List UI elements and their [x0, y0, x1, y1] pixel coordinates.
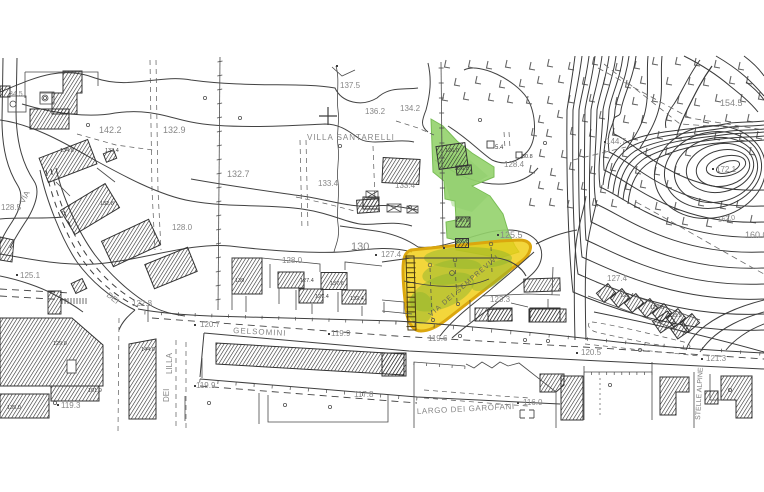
svg-text:172.1: 172.1 — [716, 165, 737, 174]
svg-text:101.9: 101.9 — [88, 388, 102, 394]
svg-text:144.7: 144.7 — [606, 137, 627, 146]
svg-text:134.2: 134.2 — [400, 104, 421, 113]
svg-text:123.6: 123.6 — [650, 305, 664, 311]
svg-text:142.2: 142.2 — [99, 125, 122, 135]
svg-text:119.6: 119.6 — [428, 334, 448, 343]
svg-text:133.4: 133.4 — [318, 179, 339, 188]
svg-text:123.5: 123.5 — [668, 313, 682, 319]
svg-text:121.3: 121.3 — [706, 354, 727, 363]
svg-text:128.4: 128.4 — [504, 160, 525, 169]
svg-text:120.5: 120.5 — [581, 348, 602, 357]
svg-text:123.3: 123.3 — [490, 295, 511, 304]
svg-text:127.4: 127.4 — [315, 294, 329, 300]
svg-text:154.5: 154.5 — [720, 98, 743, 108]
svg-text:DEI: DEI — [162, 389, 171, 402]
svg-text:127.4: 127.4 — [607, 274, 628, 283]
svg-text:137.6: 137.6 — [330, 281, 344, 287]
svg-text:136.2: 136.2 — [365, 107, 386, 116]
svg-text:116.0: 116.0 — [523, 398, 543, 407]
svg-text:119.9: 119.9 — [331, 329, 351, 338]
svg-text:160.0: 160.0 — [745, 230, 764, 240]
svg-text:30.8: 30.8 — [522, 154, 533, 160]
svg-text:119.9: 119.9 — [196, 381, 216, 390]
svg-text:226.8: 226.8 — [455, 239, 469, 245]
svg-text:132.4: 132.4 — [350, 296, 364, 302]
svg-text:125.1: 125.1 — [20, 271, 41, 280]
svg-text:133.4: 133.4 — [105, 148, 119, 154]
svg-text:VILLA SANTARELLI: VILLA SANTARELLI — [307, 133, 395, 142]
svg-text:226.8: 226.8 — [455, 218, 469, 224]
svg-text:128.5: 128.5 — [1, 203, 22, 212]
svg-text:119.3: 119.3 — [61, 401, 81, 410]
svg-text:127.4: 127.4 — [300, 278, 314, 284]
svg-text:226.8: 226.8 — [455, 166, 469, 172]
svg-text:132.9: 132.9 — [163, 125, 186, 135]
svg-text:127.4: 127.4 — [381, 250, 402, 259]
svg-text:128.0: 128.0 — [172, 223, 193, 232]
svg-text:117.8: 117.8 — [354, 390, 374, 399]
svg-text:34.5: 34.5 — [9, 91, 23, 98]
svg-text:125.5: 125.5 — [500, 230, 523, 240]
svg-text:132.7: 132.7 — [227, 169, 250, 179]
svg-text:129.0: 129.0 — [53, 341, 67, 347]
svg-text:133.4: 133.4 — [395, 181, 416, 190]
svg-text:120.7: 120.7 — [200, 320, 221, 329]
svg-text:137.5: 137.5 — [340, 81, 361, 90]
svg-text:123.4: 123.4 — [620, 293, 634, 299]
svg-text:130: 130 — [351, 241, 369, 253]
svg-text:5.4: 5.4 — [495, 145, 504, 151]
svg-text:126.0: 126.0 — [445, 148, 459, 154]
svg-text:128.0: 128.0 — [282, 256, 303, 265]
svg-text:122.8: 122.8 — [132, 299, 153, 308]
svg-text:135.0: 135.0 — [7, 405, 21, 411]
svg-text:139: 139 — [235, 278, 244, 284]
svg-text:132.8: 132.8 — [100, 201, 114, 207]
svg-text:144.0: 144.0 — [141, 347, 155, 353]
svg-text:LILLA: LILLA — [165, 352, 174, 374]
svg-text:134.8: 134.8 — [60, 148, 74, 154]
